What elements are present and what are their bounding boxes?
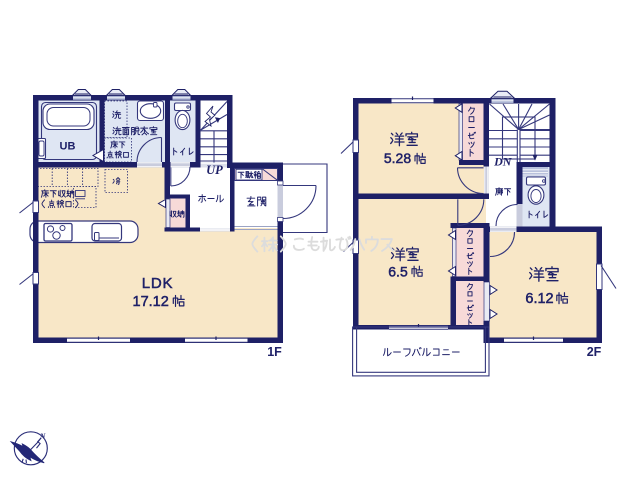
svg-text:UP: UP <box>206 163 223 177</box>
svg-text:UB: UB <box>60 141 76 153</box>
svg-text:5.28: 5.28 <box>384 150 411 166</box>
svg-text:2F: 2F <box>587 345 602 359</box>
svg-text:6.12: 6.12 <box>525 291 553 307</box>
svg-text:1F: 1F <box>267 345 282 359</box>
svg-text:6.5: 6.5 <box>388 263 408 279</box>
svg-text:DN: DN <box>493 155 513 169</box>
svg-text:N: N <box>39 431 46 440</box>
svg-text:LDK: LDK <box>142 275 174 292</box>
svg-text:17.12: 17.12 <box>133 294 169 310</box>
